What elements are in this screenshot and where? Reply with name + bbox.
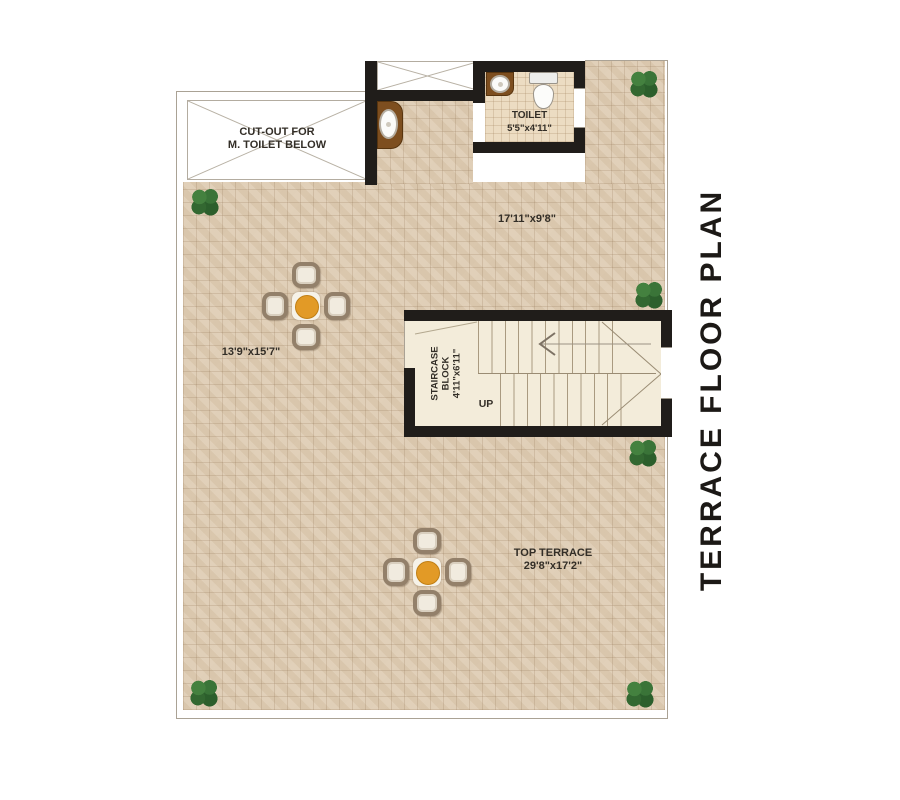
stair-wall-right-lower: [661, 397, 672, 437]
plan-border-left: [176, 91, 177, 719]
stair-up-label: UP: [474, 398, 498, 411]
plant-icon: [635, 281, 663, 309]
top-terrace-name: TOP TERRACE: [493, 547, 613, 560]
toilet-name: TOILET: [485, 109, 574, 122]
stair-left-opening-line: [404, 321, 405, 368]
table-top-icon: [416, 561, 440, 585]
chair-icon: [292, 324, 320, 350]
stair-wall-right-upper: [661, 310, 672, 347]
chair-icon: [383, 558, 409, 586]
wall-under-duct: [365, 90, 485, 101]
cutout-label: CUT-OUT FOR M. TOILET BELOW: [188, 126, 366, 152]
top-terrace-dim: 29'8"x17'2": [493, 560, 613, 573]
wall-left-vertical: [365, 61, 377, 185]
duct-box: [377, 61, 478, 91]
duct-x-hatch: [378, 62, 477, 90]
plan-border-top-right: [585, 60, 668, 61]
toilet-window: [574, 88, 585, 128]
plant-icon: [629, 439, 657, 467]
toilet-label: TOILET 5'5"x4'11": [485, 109, 574, 135]
cutout-label-line1: CUT-OUT FOR: [188, 126, 366, 139]
staircase-label-line1: STAIRCASE: [430, 319, 441, 429]
chair-icon: [445, 558, 471, 586]
plan-border-bottom: [176, 718, 668, 719]
toilet-wall-bottom: [473, 142, 585, 153]
staircase-label-line2: BLOCK: [441, 319, 452, 429]
plant-icon: [190, 679, 218, 707]
chair-icon: [324, 292, 350, 320]
cutout-label-line2: M. TOILET BELOW: [188, 139, 366, 152]
chair-icon: [292, 262, 320, 288]
plant-icon: [191, 188, 219, 216]
toilet-wall-top: [473, 61, 585, 72]
top-terrace-label: TOP TERRACE 29'8"x17'2": [493, 547, 613, 573]
table-set-upper: [261, 261, 351, 351]
floor-plan-page: CUT-OUT FOR M. TOILET BELOW TOILET 5'5"x…: [0, 0, 900, 800]
page-title: TERRACE FLOOR PLAN: [695, 189, 729, 591]
toilet-wall-right-lower: [574, 126, 585, 153]
vanity-washbasin-icon: [379, 109, 398, 139]
stair-wall-left-lower: [404, 368, 415, 437]
chair-icon: [413, 528, 441, 554]
plant-icon: [630, 70, 658, 98]
toilet-washbasin-icon: [490, 75, 510, 93]
plant-icon: [626, 680, 654, 708]
plan-border-top-left: [176, 91, 366, 92]
chair-icon: [413, 590, 441, 616]
table-top-icon: [295, 295, 319, 319]
table-set-lower: [382, 527, 472, 617]
cutout-box: CUT-OUT FOR M. TOILET BELOW: [187, 100, 367, 180]
staircase-label: STAIRCASE BLOCK 4'11"x6'11": [430, 319, 463, 429]
toilet-wall-left: [473, 61, 485, 103]
toilet-wall-right-upper: [574, 61, 585, 88]
wc-tank-icon: [529, 72, 558, 84]
staircase-block: STAIRCASE BLOCK 4'11"x6'11" UP: [404, 310, 672, 437]
toilet-dim: 5'5"x4'11": [485, 122, 574, 135]
stair-window: [661, 347, 672, 399]
terrace-floor-main: [183, 182, 665, 710]
staircase-label-dim: 4'11"x6'11": [452, 319, 463, 429]
chair-icon: [262, 292, 288, 320]
upper-terrace-dim: 17'11"x9'8": [467, 213, 587, 226]
